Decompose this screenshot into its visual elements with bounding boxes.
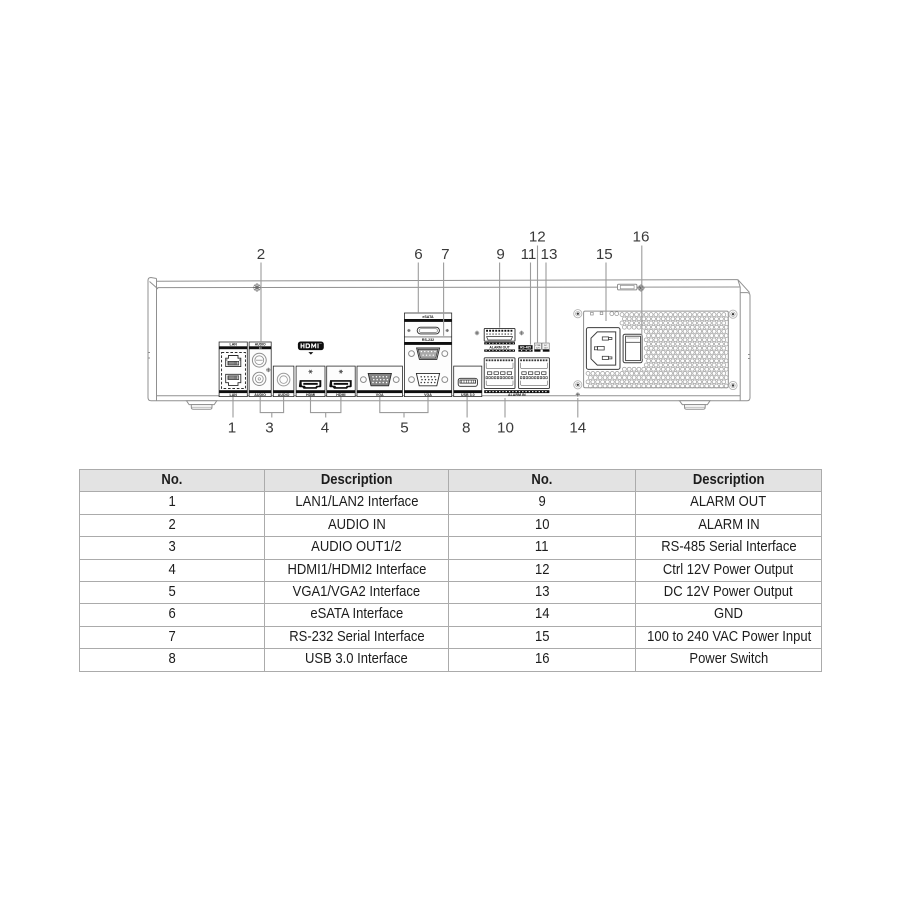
svg-text:LAN: LAN bbox=[230, 343, 238, 347]
svg-text:CTRL: CTRL bbox=[535, 345, 541, 347]
svg-text:4: 4 bbox=[321, 419, 329, 436]
svg-text:2: 2 bbox=[257, 246, 265, 263]
svg-text:AUDIO: AUDIO bbox=[278, 393, 290, 397]
svg-text:RS-232: RS-232 bbox=[422, 338, 434, 342]
svg-text:15: 15 bbox=[596, 246, 613, 263]
svg-text:AUDIO: AUDIO bbox=[255, 343, 266, 347]
svg-text:ALARM IN: ALARM IN bbox=[508, 393, 526, 397]
svg-text:DC: DC bbox=[544, 345, 548, 347]
svg-text:14: 14 bbox=[569, 419, 586, 436]
svg-text:8: 8 bbox=[462, 419, 470, 436]
svg-text:7: 7 bbox=[441, 246, 449, 263]
svg-text:6: 6 bbox=[414, 246, 422, 263]
svg-text:1: 1 bbox=[228, 419, 236, 436]
svg-text:ALARM OUT: ALARM OUT bbox=[489, 345, 510, 349]
svg-text:13: 13 bbox=[541, 246, 558, 263]
svg-text:RS-485: RS-485 bbox=[520, 346, 531, 350]
svg-text:9: 9 bbox=[496, 246, 504, 263]
svg-text:VGA: VGA bbox=[424, 393, 432, 397]
svg-text:HDMI: HDMI bbox=[336, 393, 345, 397]
svg-text:AUDIO: AUDIO bbox=[254, 393, 266, 397]
svg-text:USB 3.0: USB 3.0 bbox=[461, 393, 475, 397]
svg-text:eSATA: eSATA bbox=[422, 315, 434, 319]
svg-text:VGA: VGA bbox=[376, 393, 384, 397]
svg-text:10: 10 bbox=[497, 419, 514, 436]
svg-text:HDMI: HDMI bbox=[306, 393, 315, 397]
svg-text:11: 11 bbox=[521, 246, 537, 263]
svg-text:12V: 12V bbox=[536, 348, 540, 350]
svg-text:12V: 12V bbox=[544, 348, 548, 350]
svg-text:IN: IN bbox=[259, 346, 262, 350]
svg-text:12: 12 bbox=[529, 228, 546, 245]
svg-text:5: 5 bbox=[400, 419, 408, 436]
svg-text:LAN: LAN bbox=[230, 393, 238, 397]
svg-text:16: 16 bbox=[633, 228, 650, 245]
svg-text:3: 3 bbox=[265, 419, 273, 436]
